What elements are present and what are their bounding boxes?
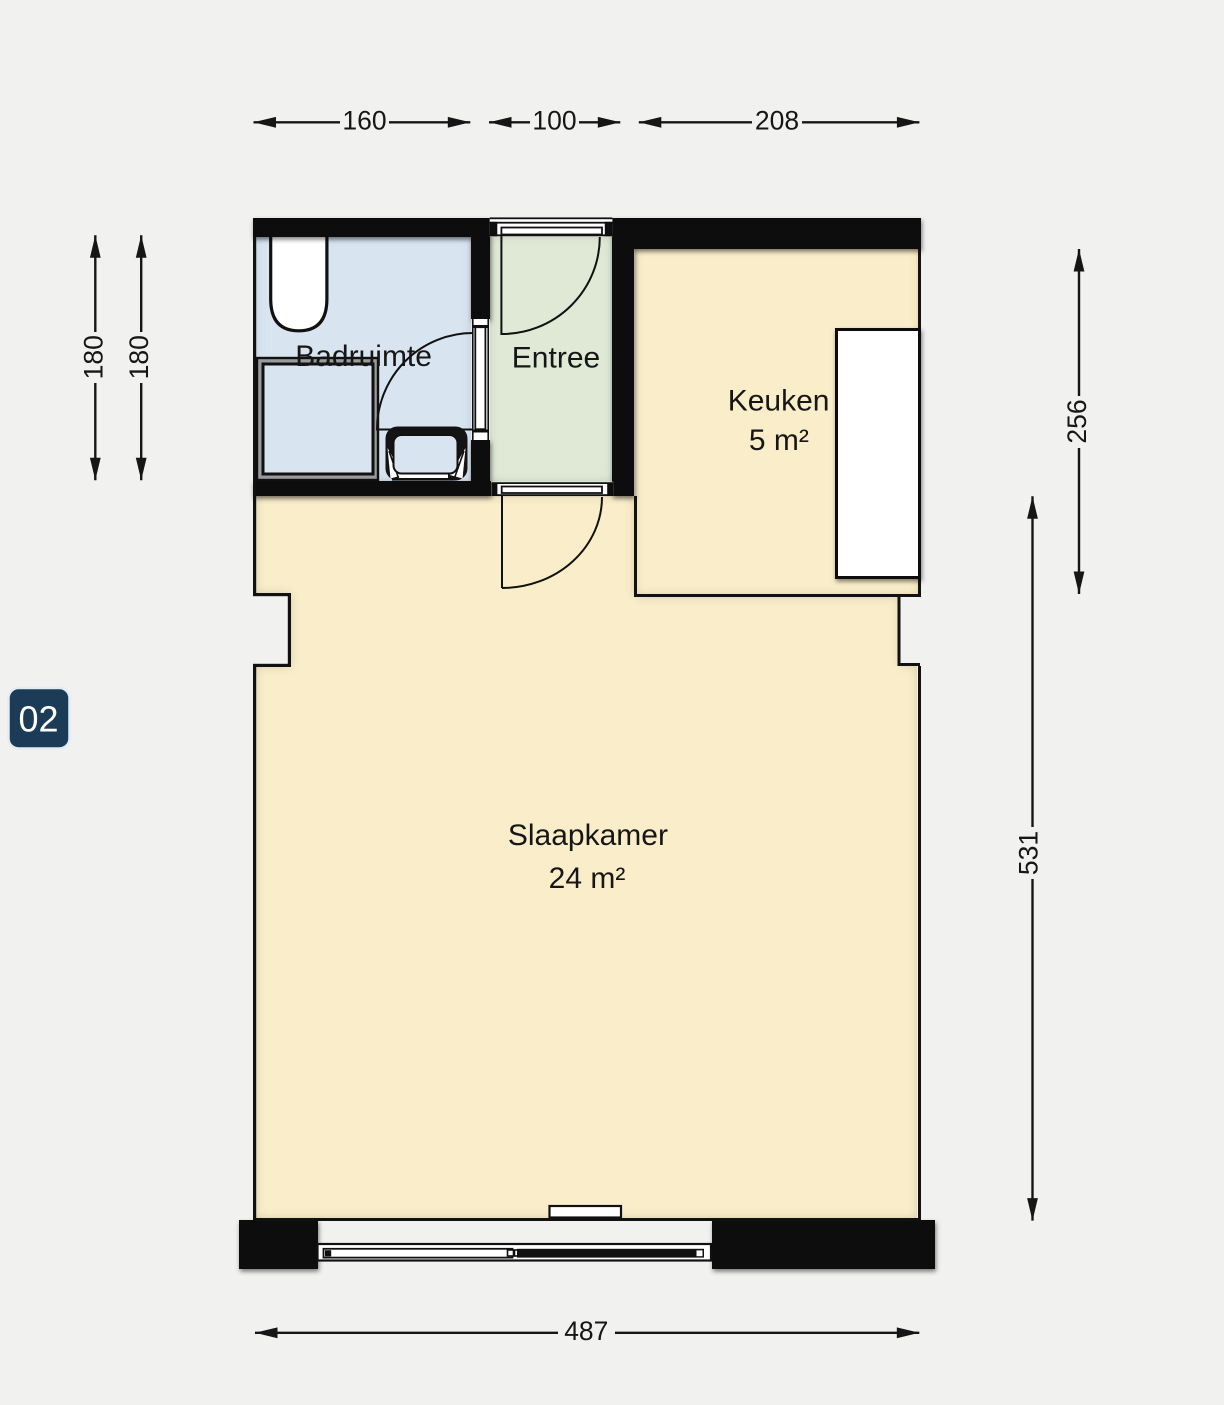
svg-text:Entree: Entree [512,341,600,374]
svg-text:208: 208 [755,105,799,135]
svg-text:24 m²: 24 m² [549,862,626,895]
svg-text:5 m²: 5 m² [749,424,809,457]
svg-text:487: 487 [564,1316,608,1346]
svg-text:160: 160 [342,105,386,135]
svg-text:180: 180 [124,335,154,379]
svg-text:100: 100 [532,105,576,135]
svg-text:Keuken: Keuken [728,385,830,418]
svg-text:180: 180 [78,335,108,379]
svg-text:256: 256 [1062,399,1092,443]
svg-text:Badruimte: Badruimte [295,340,432,373]
svg-text:531: 531 [1014,831,1044,875]
svg-text:02: 02 [18,699,58,740]
svg-text:Slaapkamer: Slaapkamer [508,819,668,852]
